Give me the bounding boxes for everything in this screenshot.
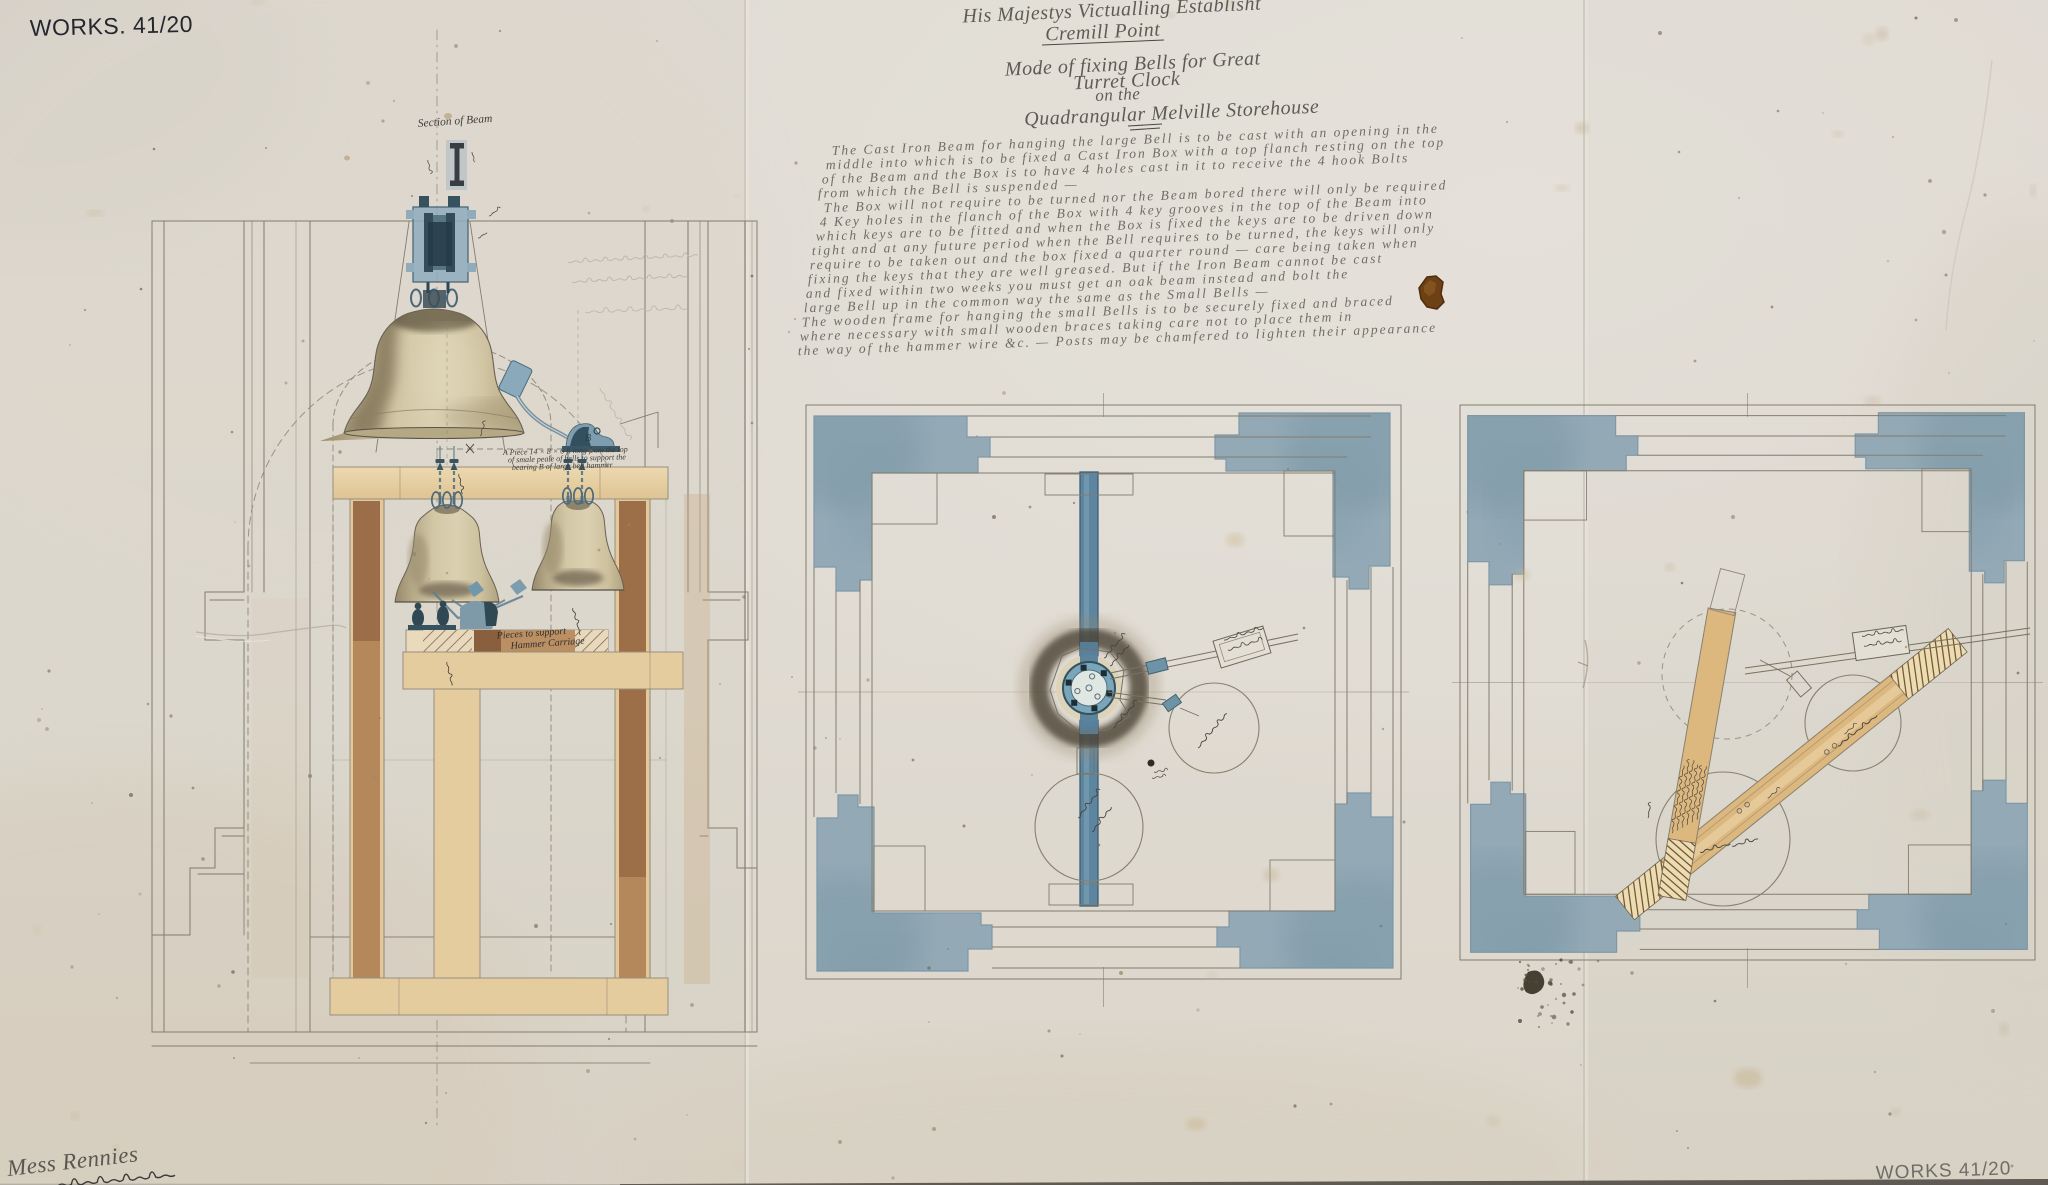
svg-text:WORKS. 41/20: WORKS. 41/20 bbox=[29, 11, 193, 41]
svg-text:B: B bbox=[585, 433, 591, 444]
svg-text:on the: on the bbox=[1095, 84, 1141, 105]
